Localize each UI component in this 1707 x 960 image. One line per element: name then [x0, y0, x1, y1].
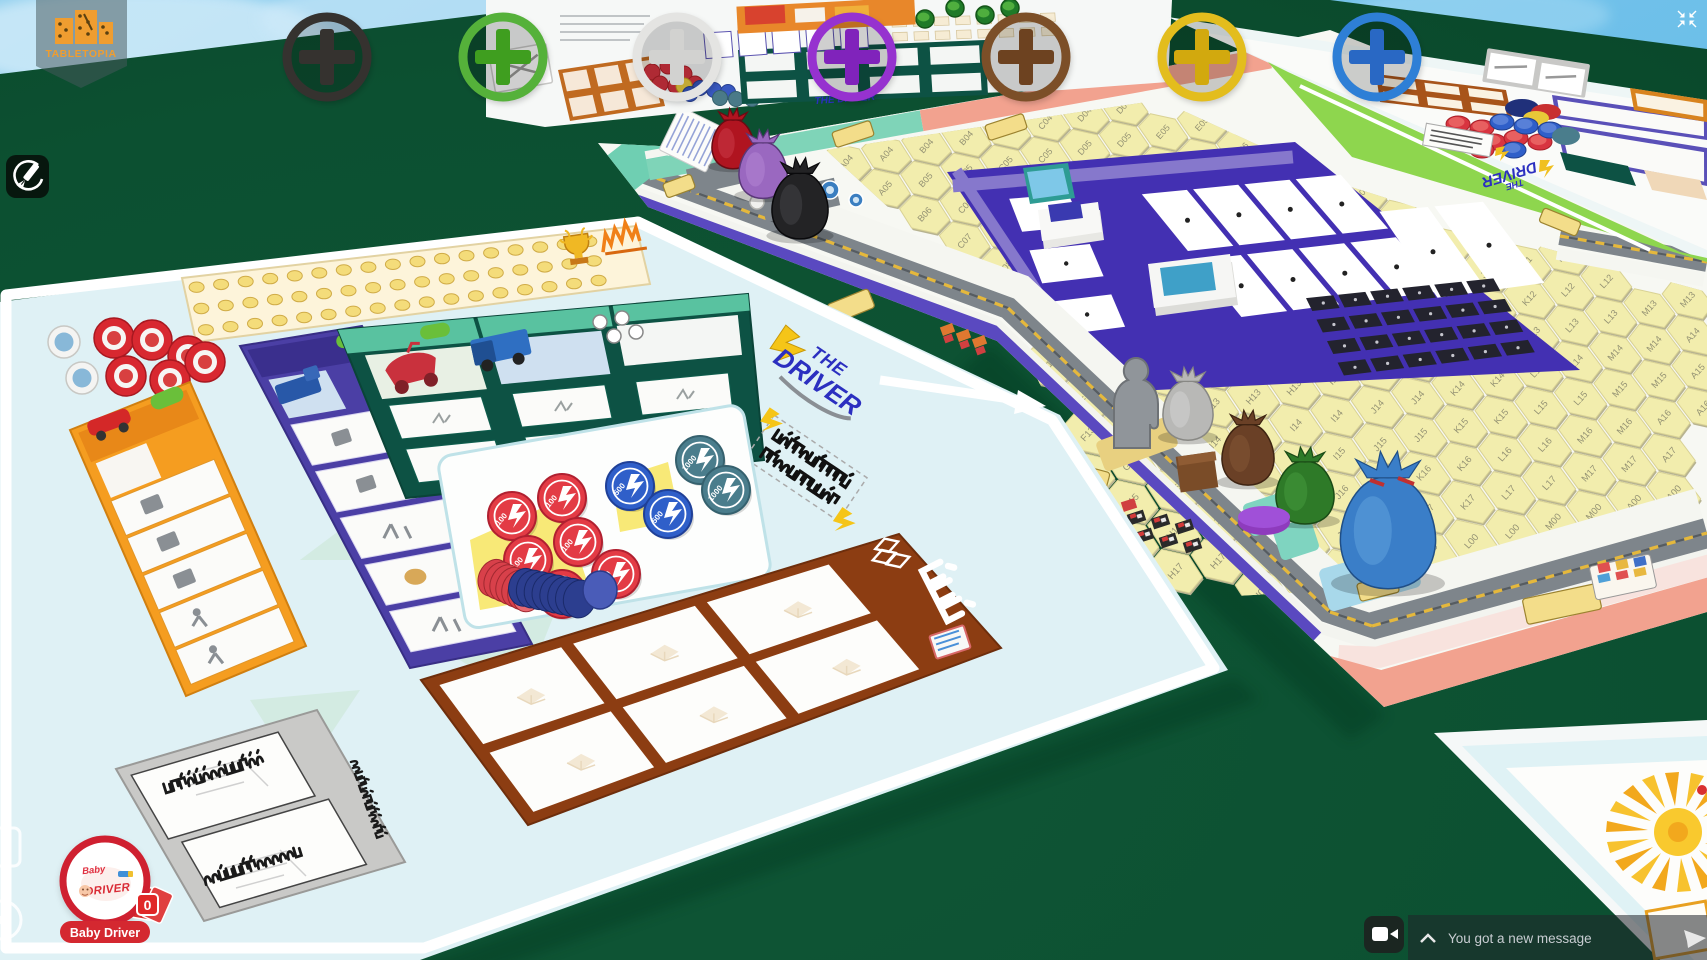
svg-text:Baby Driver: Baby Driver	[70, 926, 140, 940]
svg-text:0: 0	[144, 897, 152, 913]
svg-text:You got a new message: You got a new message	[1448, 931, 1592, 946]
svg-text:TABLETOPIA: TABLETOPIA	[45, 48, 116, 60]
